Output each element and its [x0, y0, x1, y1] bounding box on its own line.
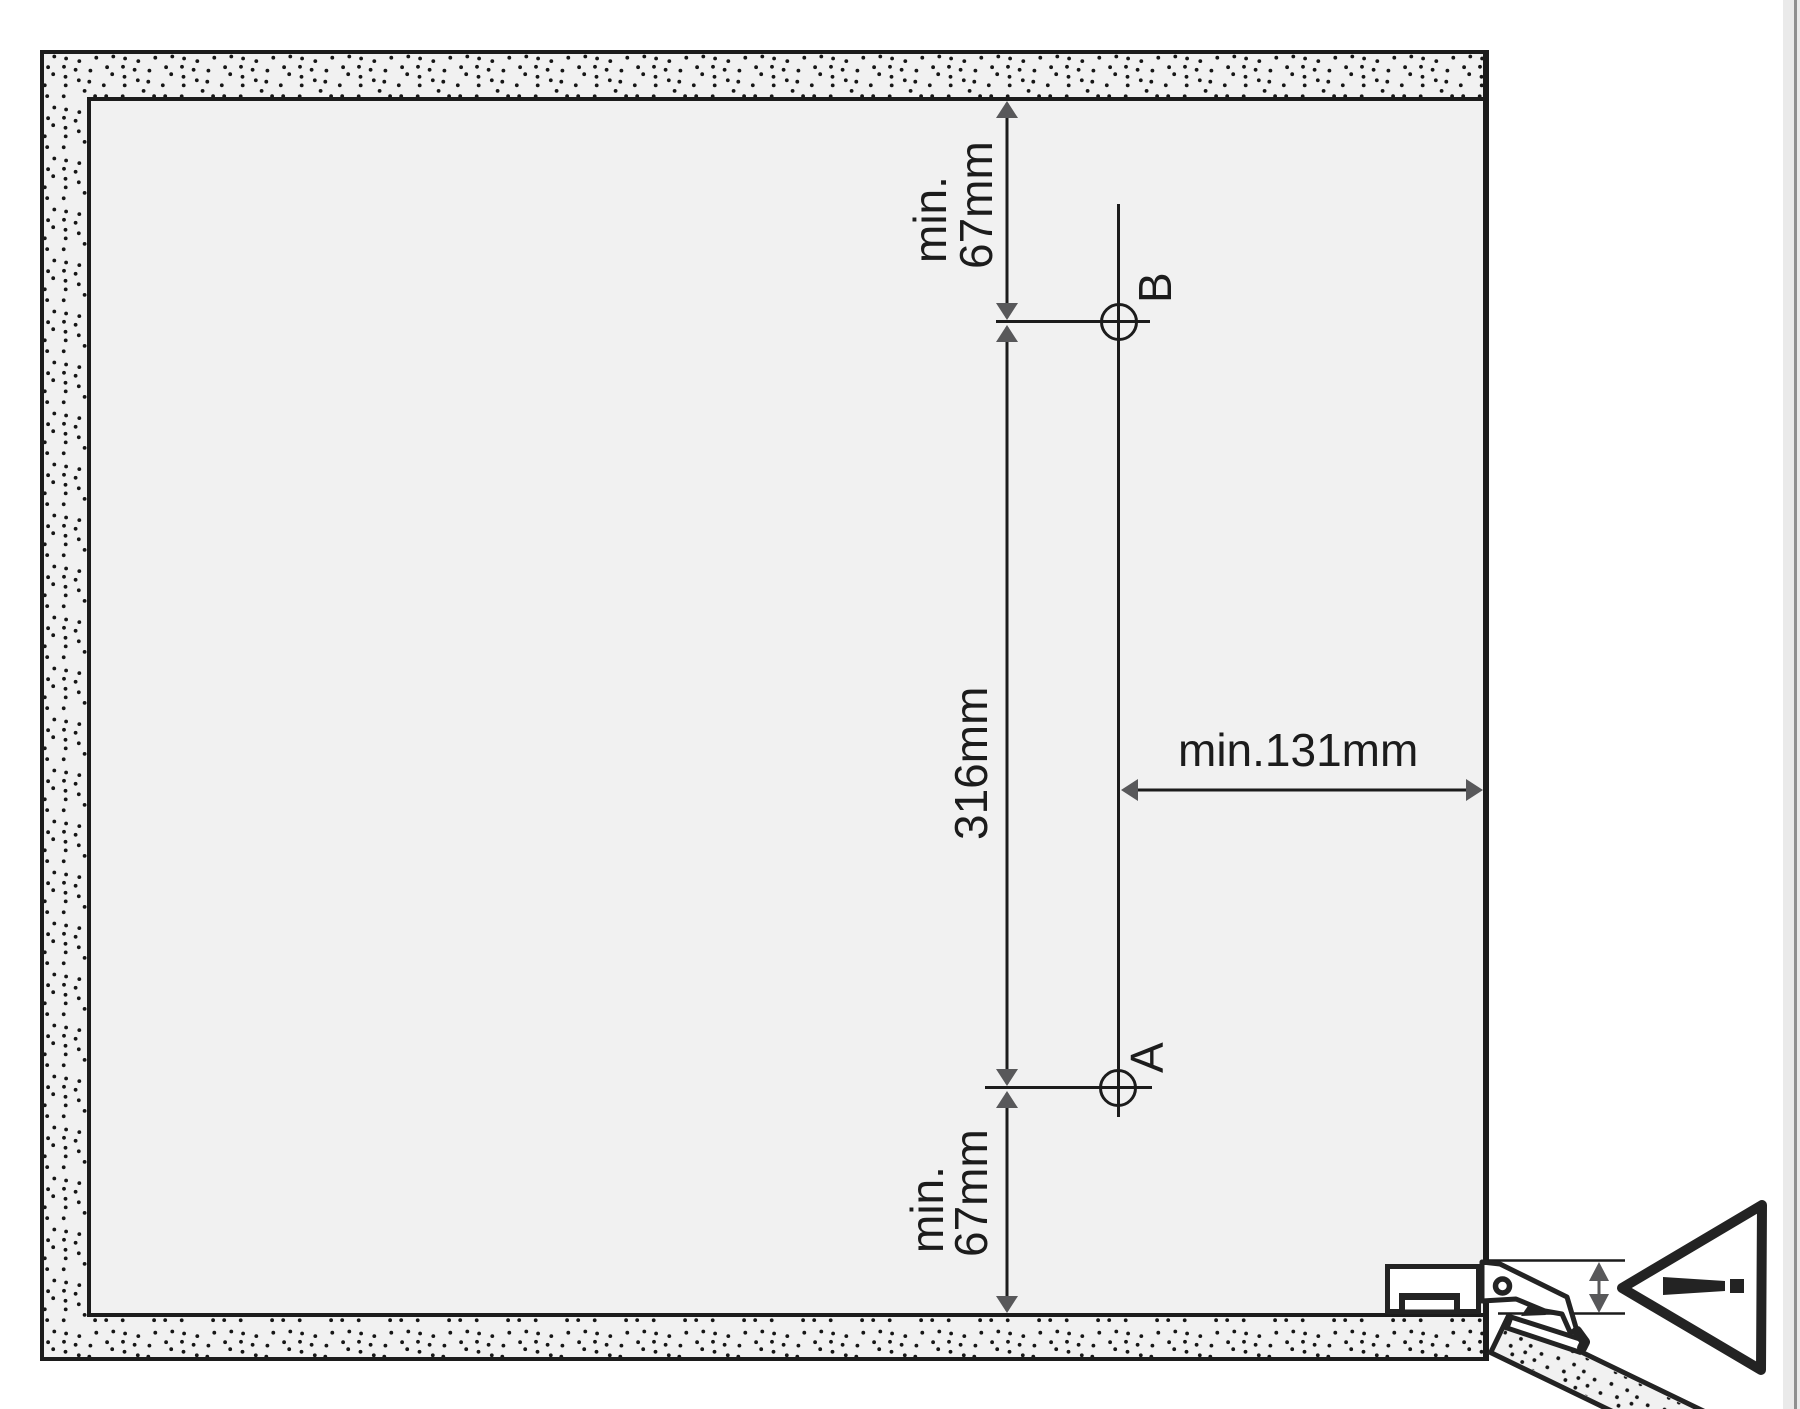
svg-text:min.131mm: min.131mm [1178, 724, 1418, 776]
svg-text:A: A [1121, 1042, 1173, 1073]
svg-text:67mm: 67mm [950, 141, 1002, 269]
svg-text:67mm: 67mm [945, 1129, 997, 1257]
svg-text:316mm: 316mm [945, 687, 997, 840]
svg-text:B: B [1129, 272, 1181, 303]
svg-text:min.: min. [904, 176, 956, 263]
